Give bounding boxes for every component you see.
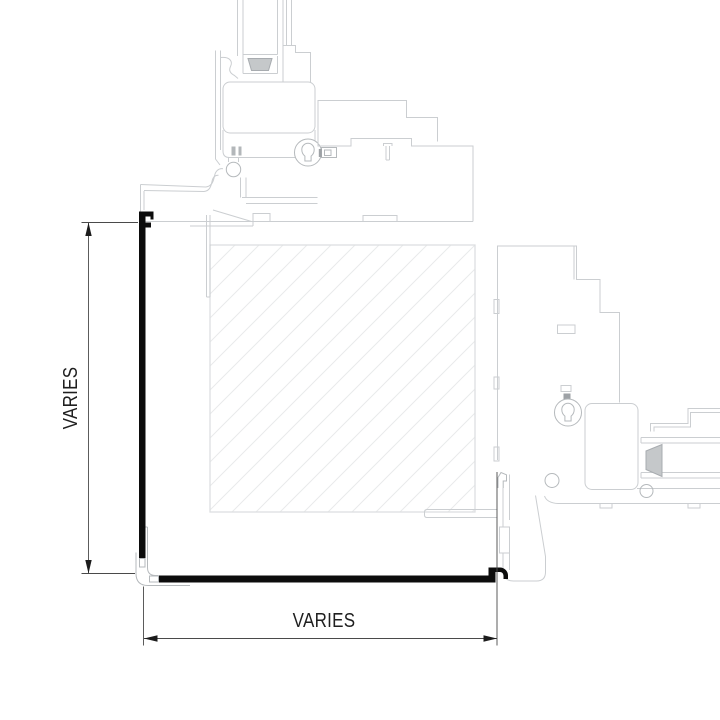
gasket-curl-jamb <box>545 474 559 488</box>
gasket-curl-top <box>226 162 240 176</box>
glazing-hatch-panel <box>210 245 475 512</box>
cam-lock-top <box>295 139 337 166</box>
closure-vertical-leg <box>139 212 154 559</box>
vertical-dimension <box>82 223 139 574</box>
cad-detail-drawing: VARIES VARIES <box>0 0 720 720</box>
setting-block <box>646 445 662 477</box>
closure-horizontal-leg <box>159 568 509 583</box>
arrow-down <box>85 560 91 574</box>
dimension-label-vertical: VARIES <box>61 367 81 430</box>
section-drawing-canvas <box>0 0 720 720</box>
receptor-flange <box>498 473 507 489</box>
arrow-left <box>144 635 158 641</box>
cam-lock-right <box>555 399 582 426</box>
arrow-right <box>484 635 498 641</box>
dimension-label-horizontal: VARIES <box>293 611 356 631</box>
setting-block <box>248 59 272 71</box>
arrow-up <box>85 223 91 237</box>
closure-end-pockets <box>140 559 159 583</box>
gasket-curl-bottom <box>640 485 653 498</box>
